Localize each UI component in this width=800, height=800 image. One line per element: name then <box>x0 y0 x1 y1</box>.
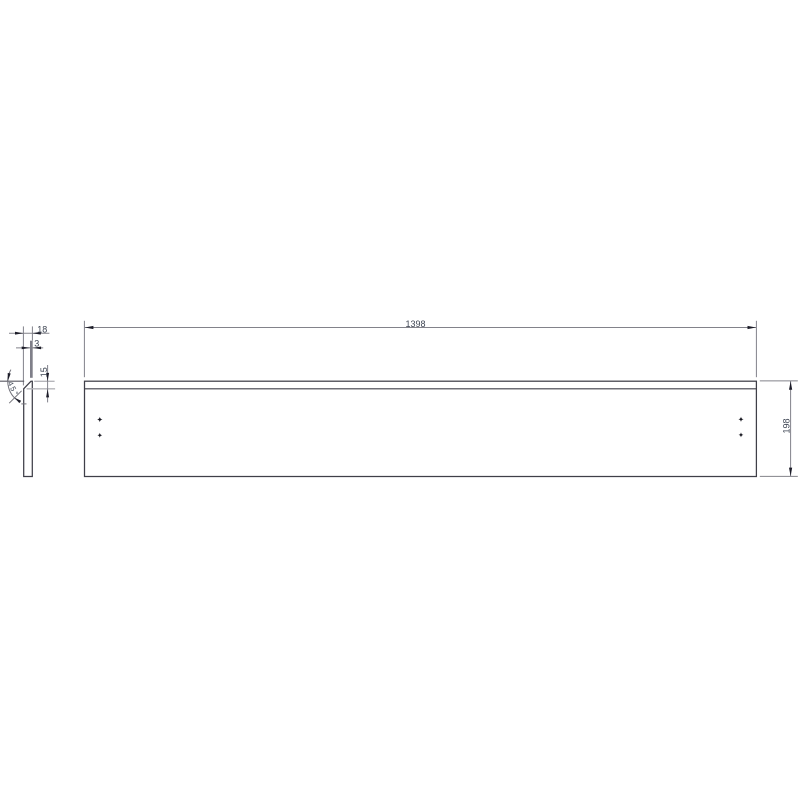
svg-text:18: 18 <box>37 325 47 335</box>
svg-text:198: 198 <box>782 418 792 433</box>
svg-text:3: 3 <box>34 338 39 348</box>
svg-text:1398: 1398 <box>405 319 425 329</box>
svg-text:15: 15 <box>39 367 49 377</box>
